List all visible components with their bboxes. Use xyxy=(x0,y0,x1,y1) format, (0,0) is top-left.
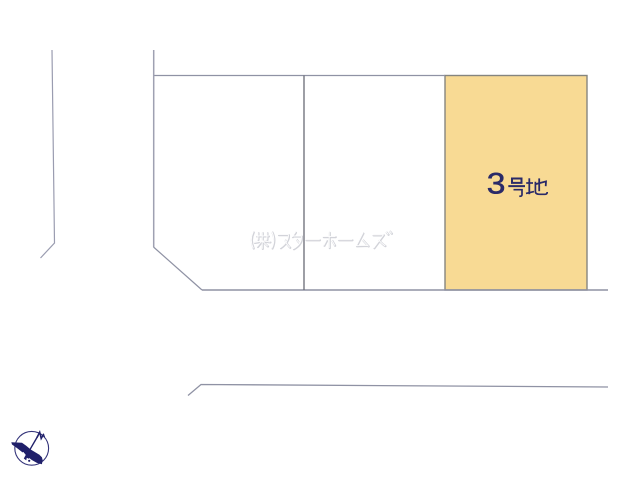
svg-text:3: 3 xyxy=(487,166,506,200)
